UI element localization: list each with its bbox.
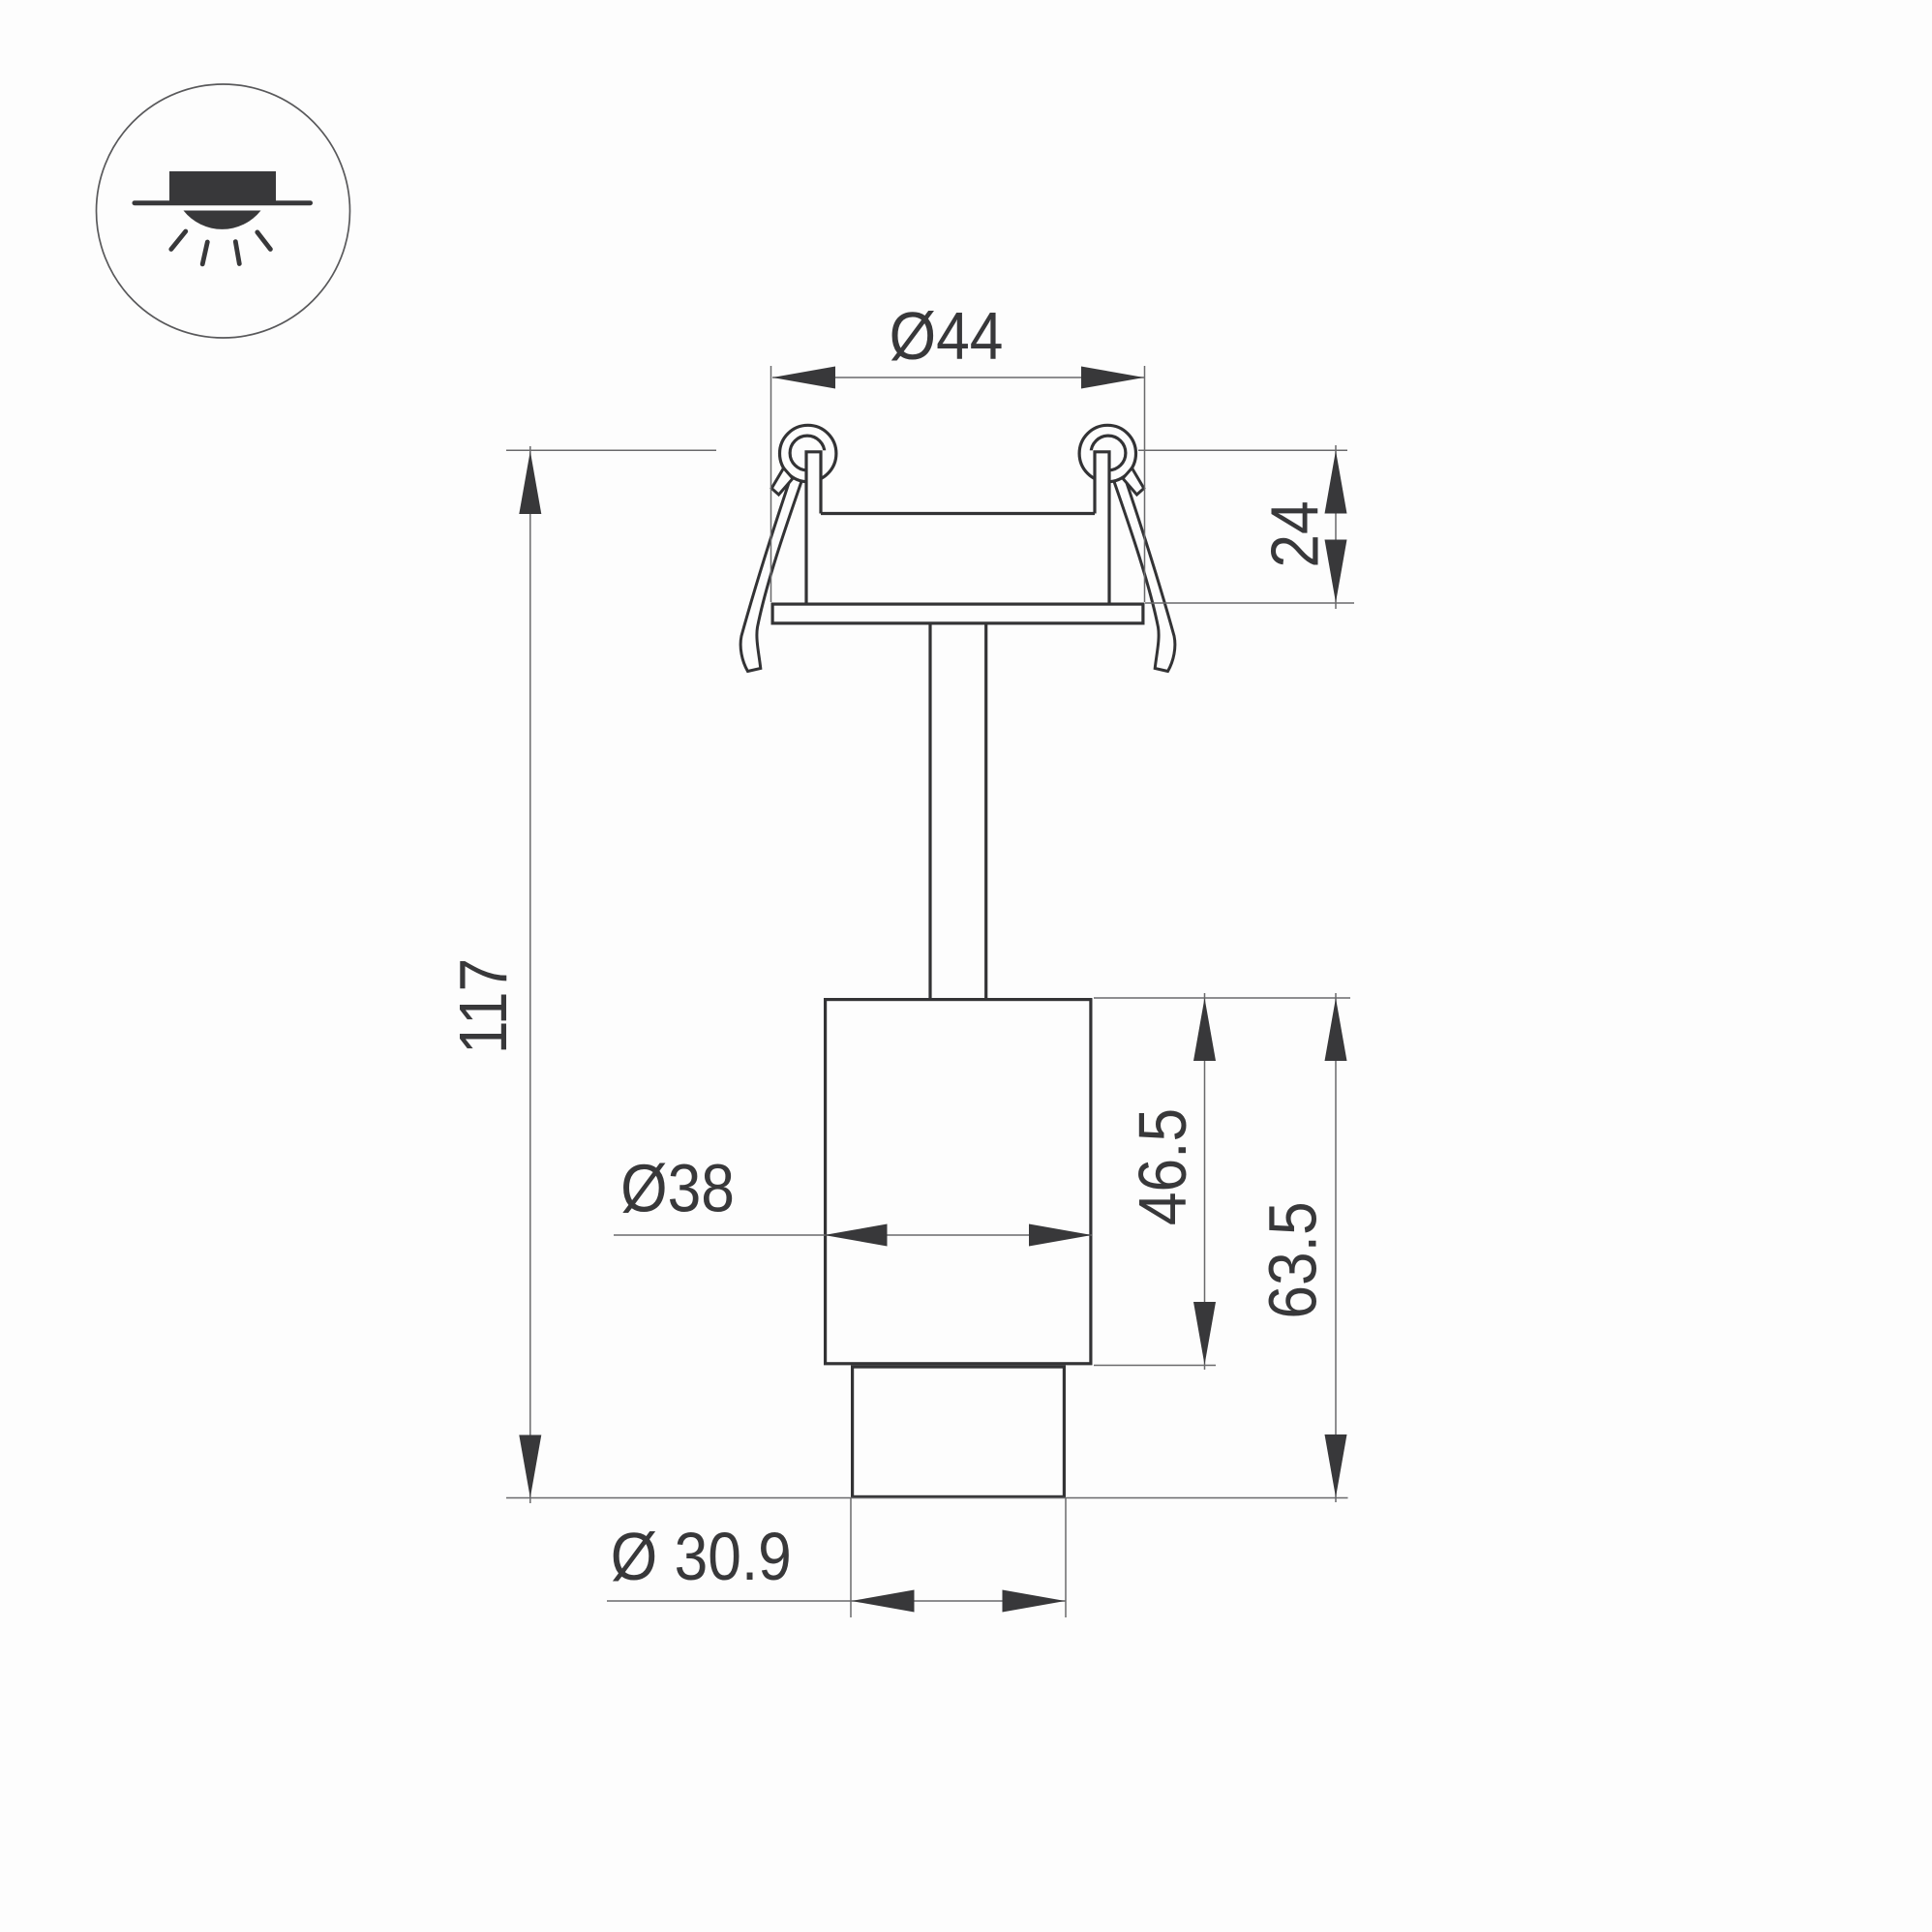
svg-text:117: 117 bbox=[446, 958, 522, 1054]
svg-text:24: 24 bbox=[1257, 500, 1333, 567]
svg-text:Ø38: Ø38 bbox=[620, 1151, 735, 1226]
svg-text:Ø 30.9: Ø 30.9 bbox=[611, 1520, 792, 1595]
svg-text:63.5: 63.5 bbox=[1255, 1201, 1331, 1318]
svg-text:Ø44: Ø44 bbox=[890, 299, 1004, 375]
svg-text:46.5: 46.5 bbox=[1126, 1108, 1201, 1225]
